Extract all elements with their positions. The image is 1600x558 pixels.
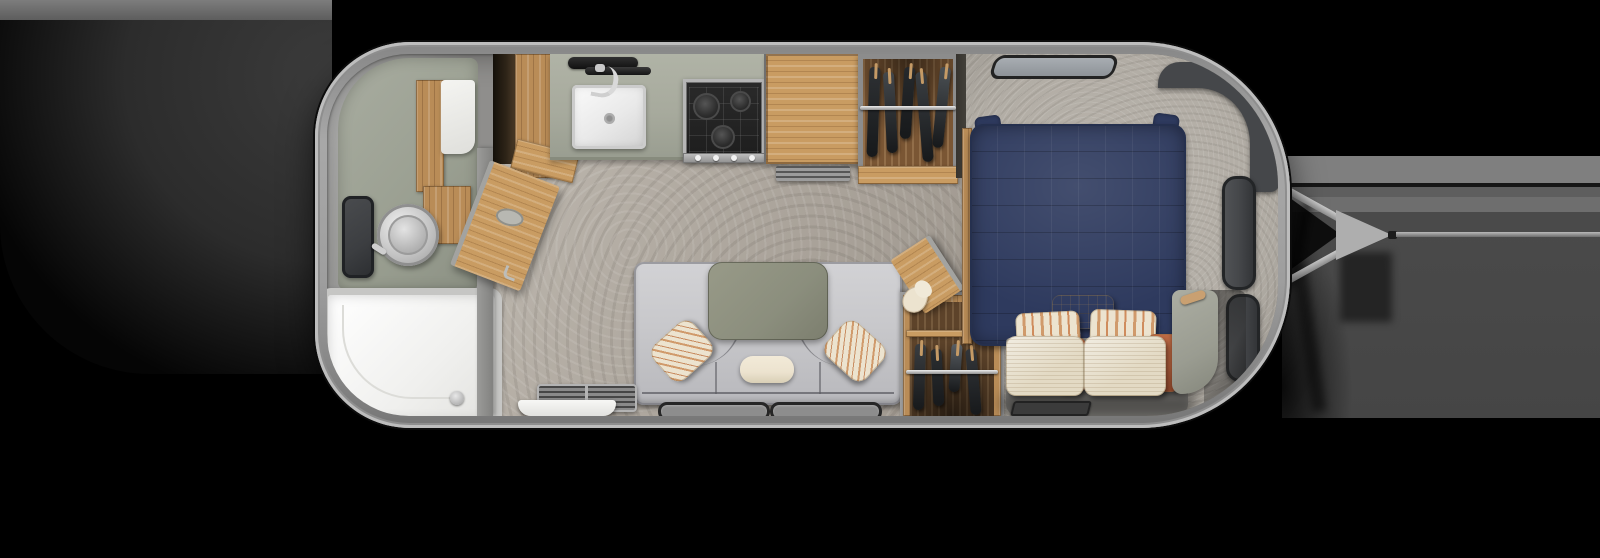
hanging-garment bbox=[866, 67, 880, 157]
cooktop-knob bbox=[713, 155, 719, 161]
sofa-seam bbox=[642, 392, 894, 394]
lounge-table bbox=[708, 262, 828, 340]
sink-drain bbox=[604, 113, 615, 124]
cooktop-knob-strip bbox=[683, 153, 765, 163]
roof-window bbox=[988, 55, 1120, 79]
sofa-seam bbox=[819, 362, 821, 394]
shower-pan bbox=[327, 288, 502, 416]
floorplan-stage bbox=[0, 0, 1600, 558]
burner bbox=[711, 125, 735, 149]
hanger-hook bbox=[909, 63, 913, 79]
hanging-garment bbox=[913, 344, 926, 410]
hanger-hook bbox=[920, 68, 924, 84]
closet-rod bbox=[860, 106, 956, 110]
pillow-cream-large bbox=[1006, 336, 1084, 396]
hanging-garment bbox=[948, 344, 962, 393]
trailer-shell bbox=[315, 42, 1290, 428]
bedside-mat bbox=[1010, 401, 1092, 416]
tow-bar bbox=[1396, 232, 1600, 237]
hanging-garment bbox=[883, 72, 898, 153]
overhead-locker bbox=[1222, 176, 1256, 290]
shower-floor-contour bbox=[342, 305, 464, 399]
cooktop-knob bbox=[731, 155, 737, 161]
front-corner-cabinet bbox=[1172, 290, 1218, 394]
hanging-garment bbox=[900, 67, 916, 140]
hanger-hook bbox=[970, 345, 974, 361]
backdrop-floor bbox=[0, 20, 332, 374]
closet-rod bbox=[906, 370, 998, 374]
hanger-hook bbox=[944, 63, 949, 79]
cooktop-knob bbox=[695, 155, 701, 161]
hitch-coupler-shadow bbox=[1340, 252, 1392, 322]
hanging-garment bbox=[915, 72, 934, 163]
pillow-cream-large bbox=[1084, 336, 1166, 396]
hitch-coupler bbox=[1336, 210, 1392, 260]
wardrobe-base-cabinet bbox=[858, 166, 958, 184]
cooktop-knob bbox=[749, 155, 755, 161]
burner bbox=[693, 93, 720, 120]
hanger-hook bbox=[935, 345, 939, 361]
shower-faucet bbox=[450, 391, 464, 405]
backdrop-horizon-band bbox=[0, 0, 332, 20]
bathroom-mirror bbox=[342, 196, 374, 278]
trailer-interior bbox=[327, 54, 1278, 416]
door-handle-recess bbox=[494, 206, 525, 229]
hanging-garment bbox=[931, 349, 945, 406]
closet-opening bbox=[493, 54, 515, 164]
backdrop-left bbox=[0, 0, 332, 374]
hanger-hook bbox=[888, 68, 892, 84]
toilet-lid bbox=[388, 215, 428, 255]
refrigerator bbox=[766, 54, 861, 164]
lounge-window bbox=[658, 402, 770, 416]
hanger-hook bbox=[874, 63, 878, 79]
door-handle bbox=[502, 265, 519, 282]
backdrop-right bbox=[1282, 156, 1600, 418]
wardrobe-street-side bbox=[858, 54, 958, 172]
u-shaped-sofa bbox=[634, 262, 902, 405]
hanger-hook bbox=[920, 340, 924, 356]
cooktop bbox=[683, 79, 765, 163]
vanity-cabinet bbox=[416, 80, 444, 192]
sofa-seam bbox=[715, 362, 717, 394]
lounge-window bbox=[770, 402, 882, 416]
burner bbox=[730, 91, 751, 112]
hanger-hook bbox=[956, 340, 960, 356]
wardrobe-interior bbox=[863, 59, 953, 167]
entry-door-mat bbox=[518, 400, 616, 416]
bathroom-cabinet bbox=[441, 80, 475, 154]
cream-pillow bbox=[740, 356, 794, 383]
hanging-garment bbox=[965, 349, 982, 416]
overhead-locker-curved bbox=[1158, 62, 1278, 192]
refrigerator-vent bbox=[776, 166, 850, 181]
toilet bbox=[377, 204, 439, 266]
